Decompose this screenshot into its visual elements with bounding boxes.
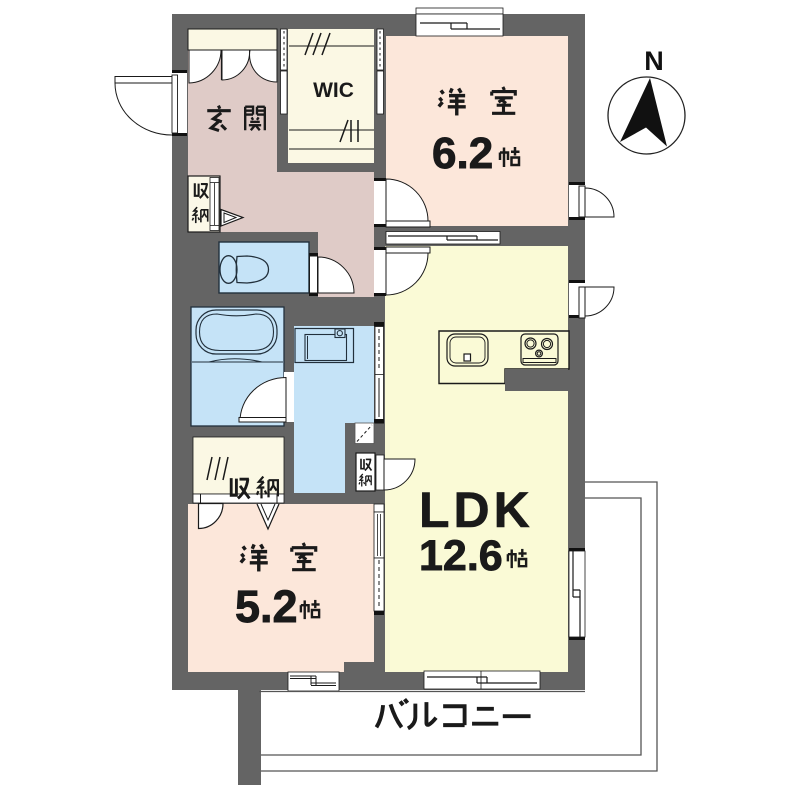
- svg-text:6.2: 6.2: [432, 129, 493, 178]
- svg-text:WIC: WIC: [313, 79, 354, 102]
- svg-text:5.2: 5.2: [235, 581, 298, 632]
- svg-text:LDK: LDK: [419, 482, 534, 538]
- svg-text:N: N: [644, 46, 664, 76]
- svg-text:12.6: 12.6: [419, 532, 503, 580]
